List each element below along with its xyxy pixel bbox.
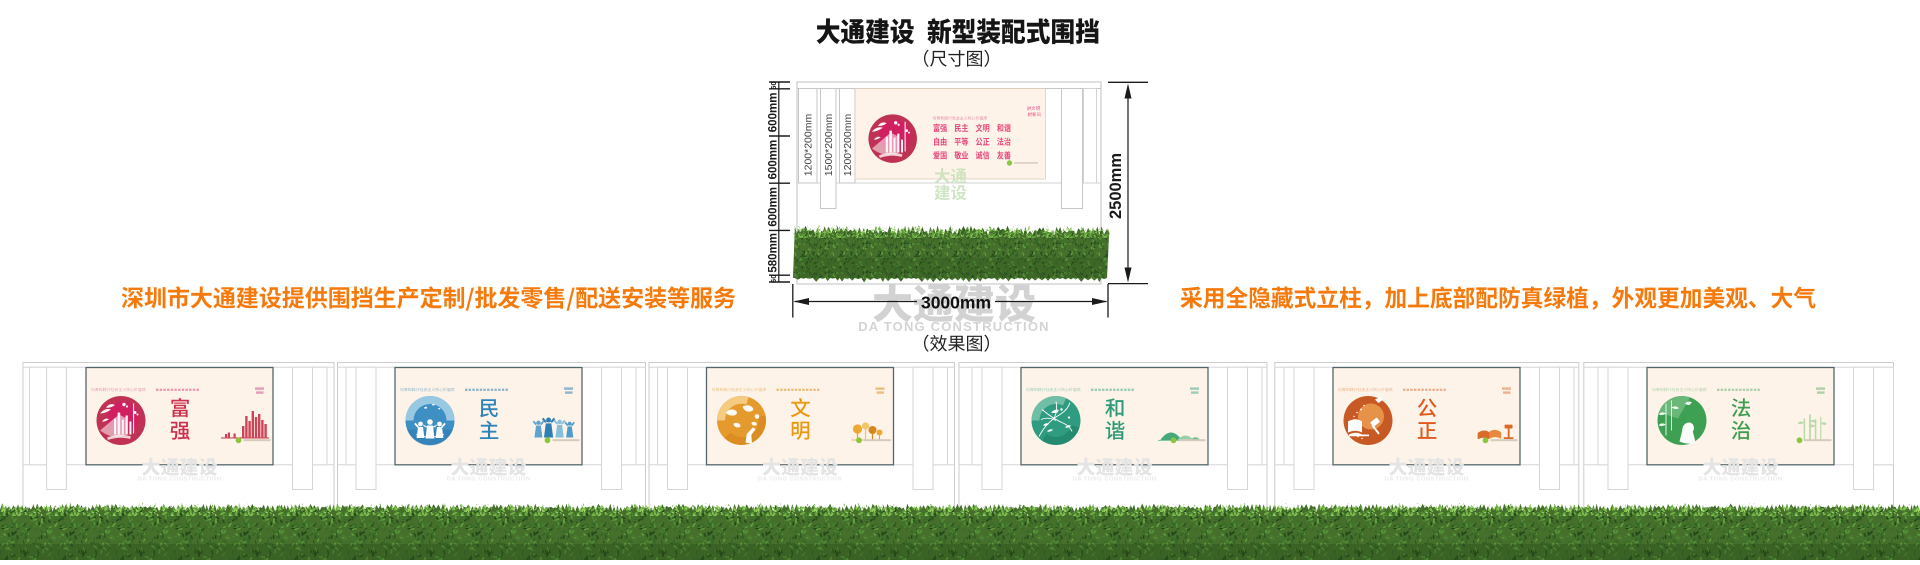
svg-text:1500*200mm: 1500*200mm: [823, 114, 835, 177]
svg-text:3000mm: 3000mm: [921, 293, 991, 313]
svg-text:600mm: 600mm: [768, 93, 780, 133]
svg-text:DA TONG CONSTRUCTION: DA TONG CONSTRUCTION: [858, 319, 1050, 334]
svg-text:1200*200mm: 1200*200mm: [803, 114, 815, 177]
svg-text:600mm: 600mm: [768, 187, 780, 227]
svg-text:60: 60: [769, 81, 778, 89]
svg-text:2500mm: 2500mm: [1107, 153, 1125, 219]
svg-text:580mm: 580mm: [768, 233, 780, 273]
svg-text:1200*200mm: 1200*200mm: [842, 114, 854, 177]
svg-text:600mm: 600mm: [768, 140, 780, 180]
svg-text:60: 60: [769, 275, 778, 283]
